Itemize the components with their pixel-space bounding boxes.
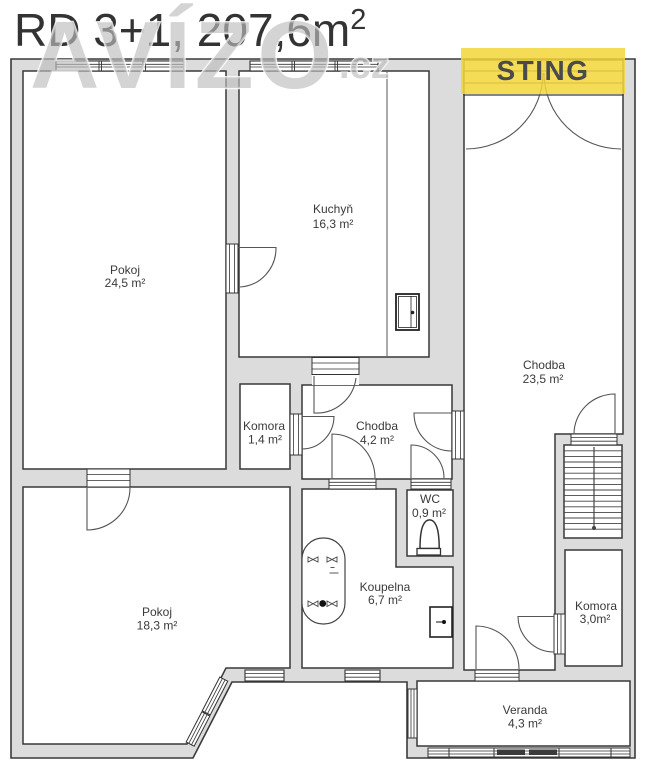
svg-text:Komora: Komora	[243, 419, 285, 433]
svg-text:6,7 m²: 6,7 m²	[368, 593, 402, 607]
svg-text:Veranda: Veranda	[503, 703, 548, 717]
svg-text:Komora: Komora	[575, 599, 617, 613]
svg-text:3,0m²: 3,0m²	[580, 612, 611, 626]
svg-text:16,3 m²: 16,3 m²	[313, 217, 354, 231]
svg-text:18,3 m²: 18,3 m²	[137, 619, 178, 633]
svg-text:4,2 m²: 4,2 m²	[360, 433, 394, 447]
svg-text:0,9 m²: 0,9 m²	[412, 506, 446, 520]
svg-text:Chodba: Chodba	[523, 358, 565, 372]
svg-text:.cz: .cz	[339, 45, 390, 87]
svg-text:4,3 m²: 4,3 m²	[508, 717, 542, 731]
svg-text:23,5 m²: 23,5 m²	[523, 372, 564, 386]
svg-text:Koupelna: Koupelna	[360, 580, 411, 594]
svg-text:STING: STING	[496, 55, 589, 86]
svg-text:WC: WC	[420, 492, 440, 506]
svg-text:AVÍZO: AVÍZO	[30, 2, 336, 109]
svg-text:Chodba: Chodba	[356, 419, 398, 433]
svg-text:Kuchyň: Kuchyň	[313, 202, 353, 216]
svg-text:Pokoj: Pokoj	[142, 605, 172, 619]
svg-text:1,4 m²: 1,4 m²	[248, 433, 282, 447]
svg-text:Pokoj: Pokoj	[110, 263, 140, 277]
svg-text:24,5 m²: 24,5 m²	[105, 276, 146, 290]
